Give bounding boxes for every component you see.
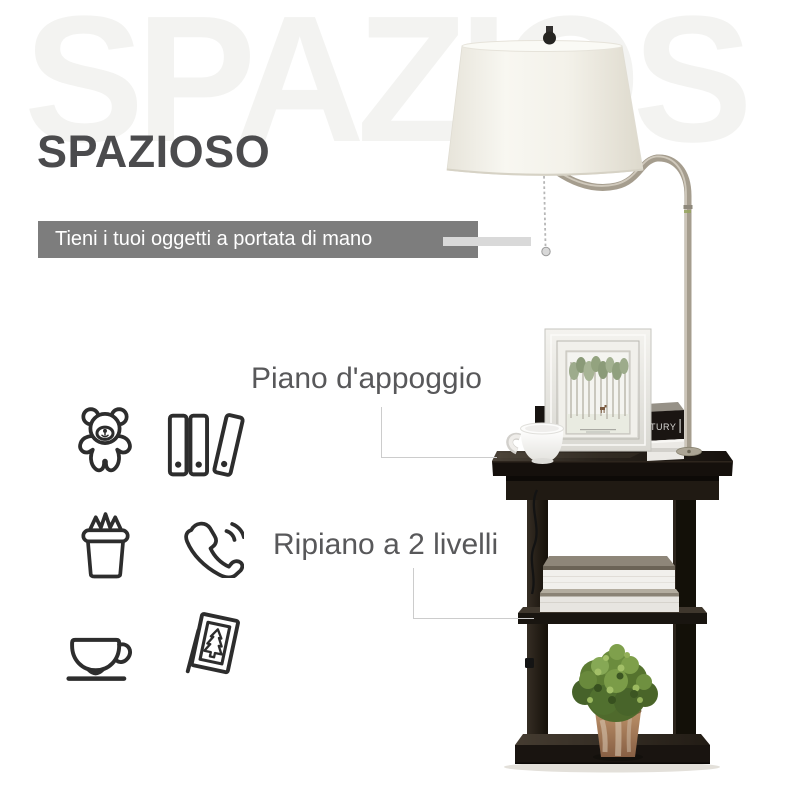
coffee-cup-icon — [64, 633, 141, 684]
art-caption-line — [580, 429, 616, 430]
finial-ball — [543, 32, 556, 45]
page-title: SPAZIOSO — [37, 129, 270, 174]
callout-surface-connector — [381, 407, 497, 458]
plant-foliage — [572, 644, 658, 722]
pole-marker — [684, 210, 691, 213]
pull-chain — [544, 176, 546, 246]
callout-shelves-label: Ripiano a 2 livelli — [273, 528, 498, 561]
middle-shelf-edge — [518, 613, 707, 624]
pointer-bar — [443, 237, 531, 246]
pull-chain-ball — [542, 247, 550, 255]
binders-icon — [164, 409, 254, 483]
callout-shelves-connector — [413, 568, 534, 619]
tabletop-items: TURY — [510, 329, 702, 464]
gift-box-icon — [74, 509, 137, 583]
callout-surface-label: Piano d'appoggio — [251, 362, 482, 395]
book-spine-text: TURY — [650, 422, 676, 432]
pole-seam — [684, 205, 693, 209]
shade-top-rim — [462, 41, 622, 52]
cord-clip — [525, 658, 534, 668]
tabletop-sheen — [497, 453, 640, 458]
shelf-books — [540, 556, 679, 612]
tagline-banner: Tieni i tuoi oggetti a portata di mano — [38, 221, 478, 258]
tagline-text: Tieni i tuoi oggetti a portata di mano — [38, 228, 372, 251]
teddy-bear-icon — [72, 404, 138, 485]
tabletop-edge — [492, 461, 733, 476]
page: SPAZIOS — [0, 0, 800, 800]
picture-frame-icon — [180, 610, 244, 682]
lamp-shade — [447, 46, 643, 176]
phone-icon — [178, 516, 244, 578]
